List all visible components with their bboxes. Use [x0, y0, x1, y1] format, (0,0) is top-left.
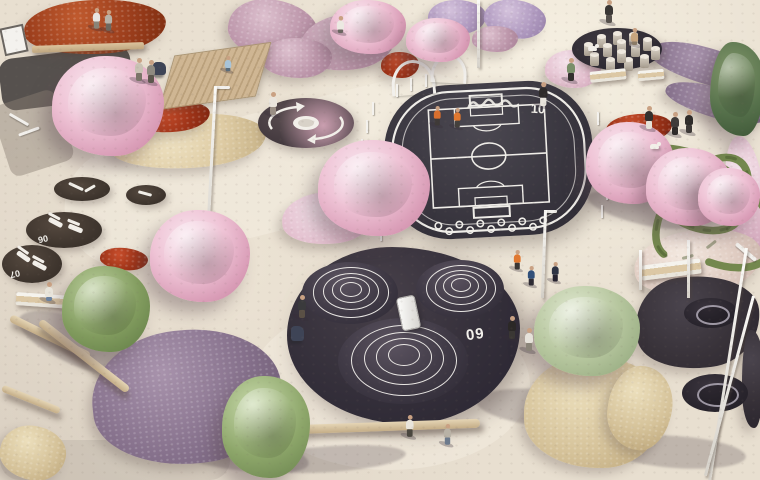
play-mound [416, 260, 504, 318]
tree-pink [698, 168, 760, 226]
fence-post [410, 78, 412, 91]
person-body [631, 33, 638, 42]
person [604, 0, 614, 23]
person-body [454, 112, 461, 121]
person [527, 266, 536, 286]
tree-pink [318, 140, 430, 236]
tree-olive [534, 286, 640, 376]
person-legs [529, 279, 534, 286]
lounge-circle [54, 177, 110, 201]
person-body [406, 420, 414, 430]
person-legs [646, 121, 652, 129]
person [630, 28, 639, 45]
person-body [514, 254, 521, 263]
lamp-pole [477, 0, 480, 68]
wood-stump [640, 56, 649, 68]
wood-stump [651, 48, 660, 60]
person-legs [94, 22, 99, 29]
tree-pink [406, 18, 470, 62]
person-body [444, 429, 451, 438]
person [538, 82, 549, 106]
play-mound [338, 318, 468, 404]
person-legs [46, 297, 52, 301]
lounge-circle: 06 [26, 212, 102, 248]
person-body [539, 87, 547, 98]
play-equipment [68, 182, 84, 191]
person-body [434, 110, 441, 119]
person-legs [299, 310, 305, 318]
person-body [147, 65, 155, 75]
person [670, 112, 680, 135]
play-equipment [138, 190, 152, 197]
lounge-chair [48, 217, 64, 228]
person [92, 8, 101, 29]
person [44, 282, 54, 301]
fence-post [366, 120, 368, 133]
person-body [45, 287, 53, 297]
fence-post [601, 205, 603, 218]
tree-green2 [222, 376, 310, 478]
person [684, 110, 694, 133]
person [134, 58, 144, 81]
person-body [93, 13, 100, 22]
person-body [298, 300, 306, 310]
person [566, 58, 576, 81]
person [297, 295, 307, 318]
fence-post [372, 102, 374, 115]
person [507, 316, 517, 339]
bench-white [638, 69, 665, 81]
park-aerial-render: 10 09 0607 [0, 0, 760, 480]
person-body [685, 115, 693, 125]
person-legs [672, 127, 678, 135]
person [524, 328, 534, 351]
log [1, 385, 61, 415]
person [551, 262, 560, 282]
person-legs [106, 24, 111, 31]
dog [650, 144, 659, 149]
person-legs [509, 331, 515, 339]
rail [216, 86, 230, 89]
person-legs [338, 30, 343, 34]
person-legs [148, 75, 154, 83]
person [104, 10, 113, 31]
fence-post [597, 112, 599, 125]
person-body [528, 270, 535, 279]
swing-ring [696, 305, 730, 325]
lamp-pole [687, 240, 690, 298]
person-legs [226, 68, 231, 71]
person-body [135, 63, 143, 73]
person-body [508, 321, 516, 331]
lounge-chair [32, 260, 48, 271]
person [268, 92, 278, 115]
person-legs [686, 125, 692, 133]
court-dot-trail [435, 217, 547, 235]
fence-post [396, 84, 398, 97]
stroller [291, 326, 304, 341]
person-body [552, 266, 559, 275]
person-legs [553, 275, 558, 282]
wood-stump [590, 54, 599, 66]
swing-ring [697, 383, 739, 407]
mound-ring [340, 282, 362, 297]
person-legs [606, 15, 612, 23]
mounds-number: 09 [465, 325, 486, 344]
person-legs [568, 73, 574, 81]
play-mound [302, 262, 398, 324]
person-body [525, 333, 533, 343]
person [453, 108, 462, 128]
person-legs [632, 42, 637, 46]
tree-green [62, 266, 150, 352]
person-body [337, 21, 344, 30]
person-body [567, 63, 575, 73]
bench-white [590, 68, 627, 83]
person-body [269, 97, 277, 107]
person [644, 106, 654, 129]
person-legs [540, 98, 546, 106]
person [336, 16, 345, 33]
person [433, 106, 442, 126]
lounge-circle: 07 [2, 245, 62, 283]
person-legs [515, 263, 520, 270]
person-legs [455, 121, 460, 128]
wood-stump [603, 45, 612, 57]
person [405, 415, 415, 437]
person [224, 56, 232, 71]
person-body [105, 15, 112, 24]
person-legs [435, 119, 440, 126]
person [513, 250, 522, 270]
person-body [225, 60, 231, 68]
person-legs [270, 107, 276, 115]
lounge-chair [16, 250, 31, 263]
lounge-number: 06 [37, 233, 49, 245]
lounge-circle [126, 185, 166, 205]
fence-post [425, 74, 427, 87]
person-legs [526, 343, 532, 351]
person-legs [407, 429, 413, 437]
person-body [605, 5, 613, 15]
play-equipment [84, 184, 96, 193]
person-body [671, 117, 679, 127]
lounge-number: 07 [9, 268, 21, 280]
lounge-chair [68, 223, 84, 233]
goal-frame-bottom [473, 206, 509, 218]
tree-pink [150, 210, 250, 302]
person-body [645, 111, 653, 121]
tree-conifer [710, 42, 760, 136]
wood-stump [617, 51, 626, 63]
person-legs [445, 438, 450, 445]
planting-bed-rubber [742, 330, 760, 428]
lamp-pole [639, 250, 642, 290]
person [443, 424, 452, 445]
person [146, 60, 156, 83]
planting-bed-mauve [262, 38, 332, 78]
dog [588, 46, 597, 51]
